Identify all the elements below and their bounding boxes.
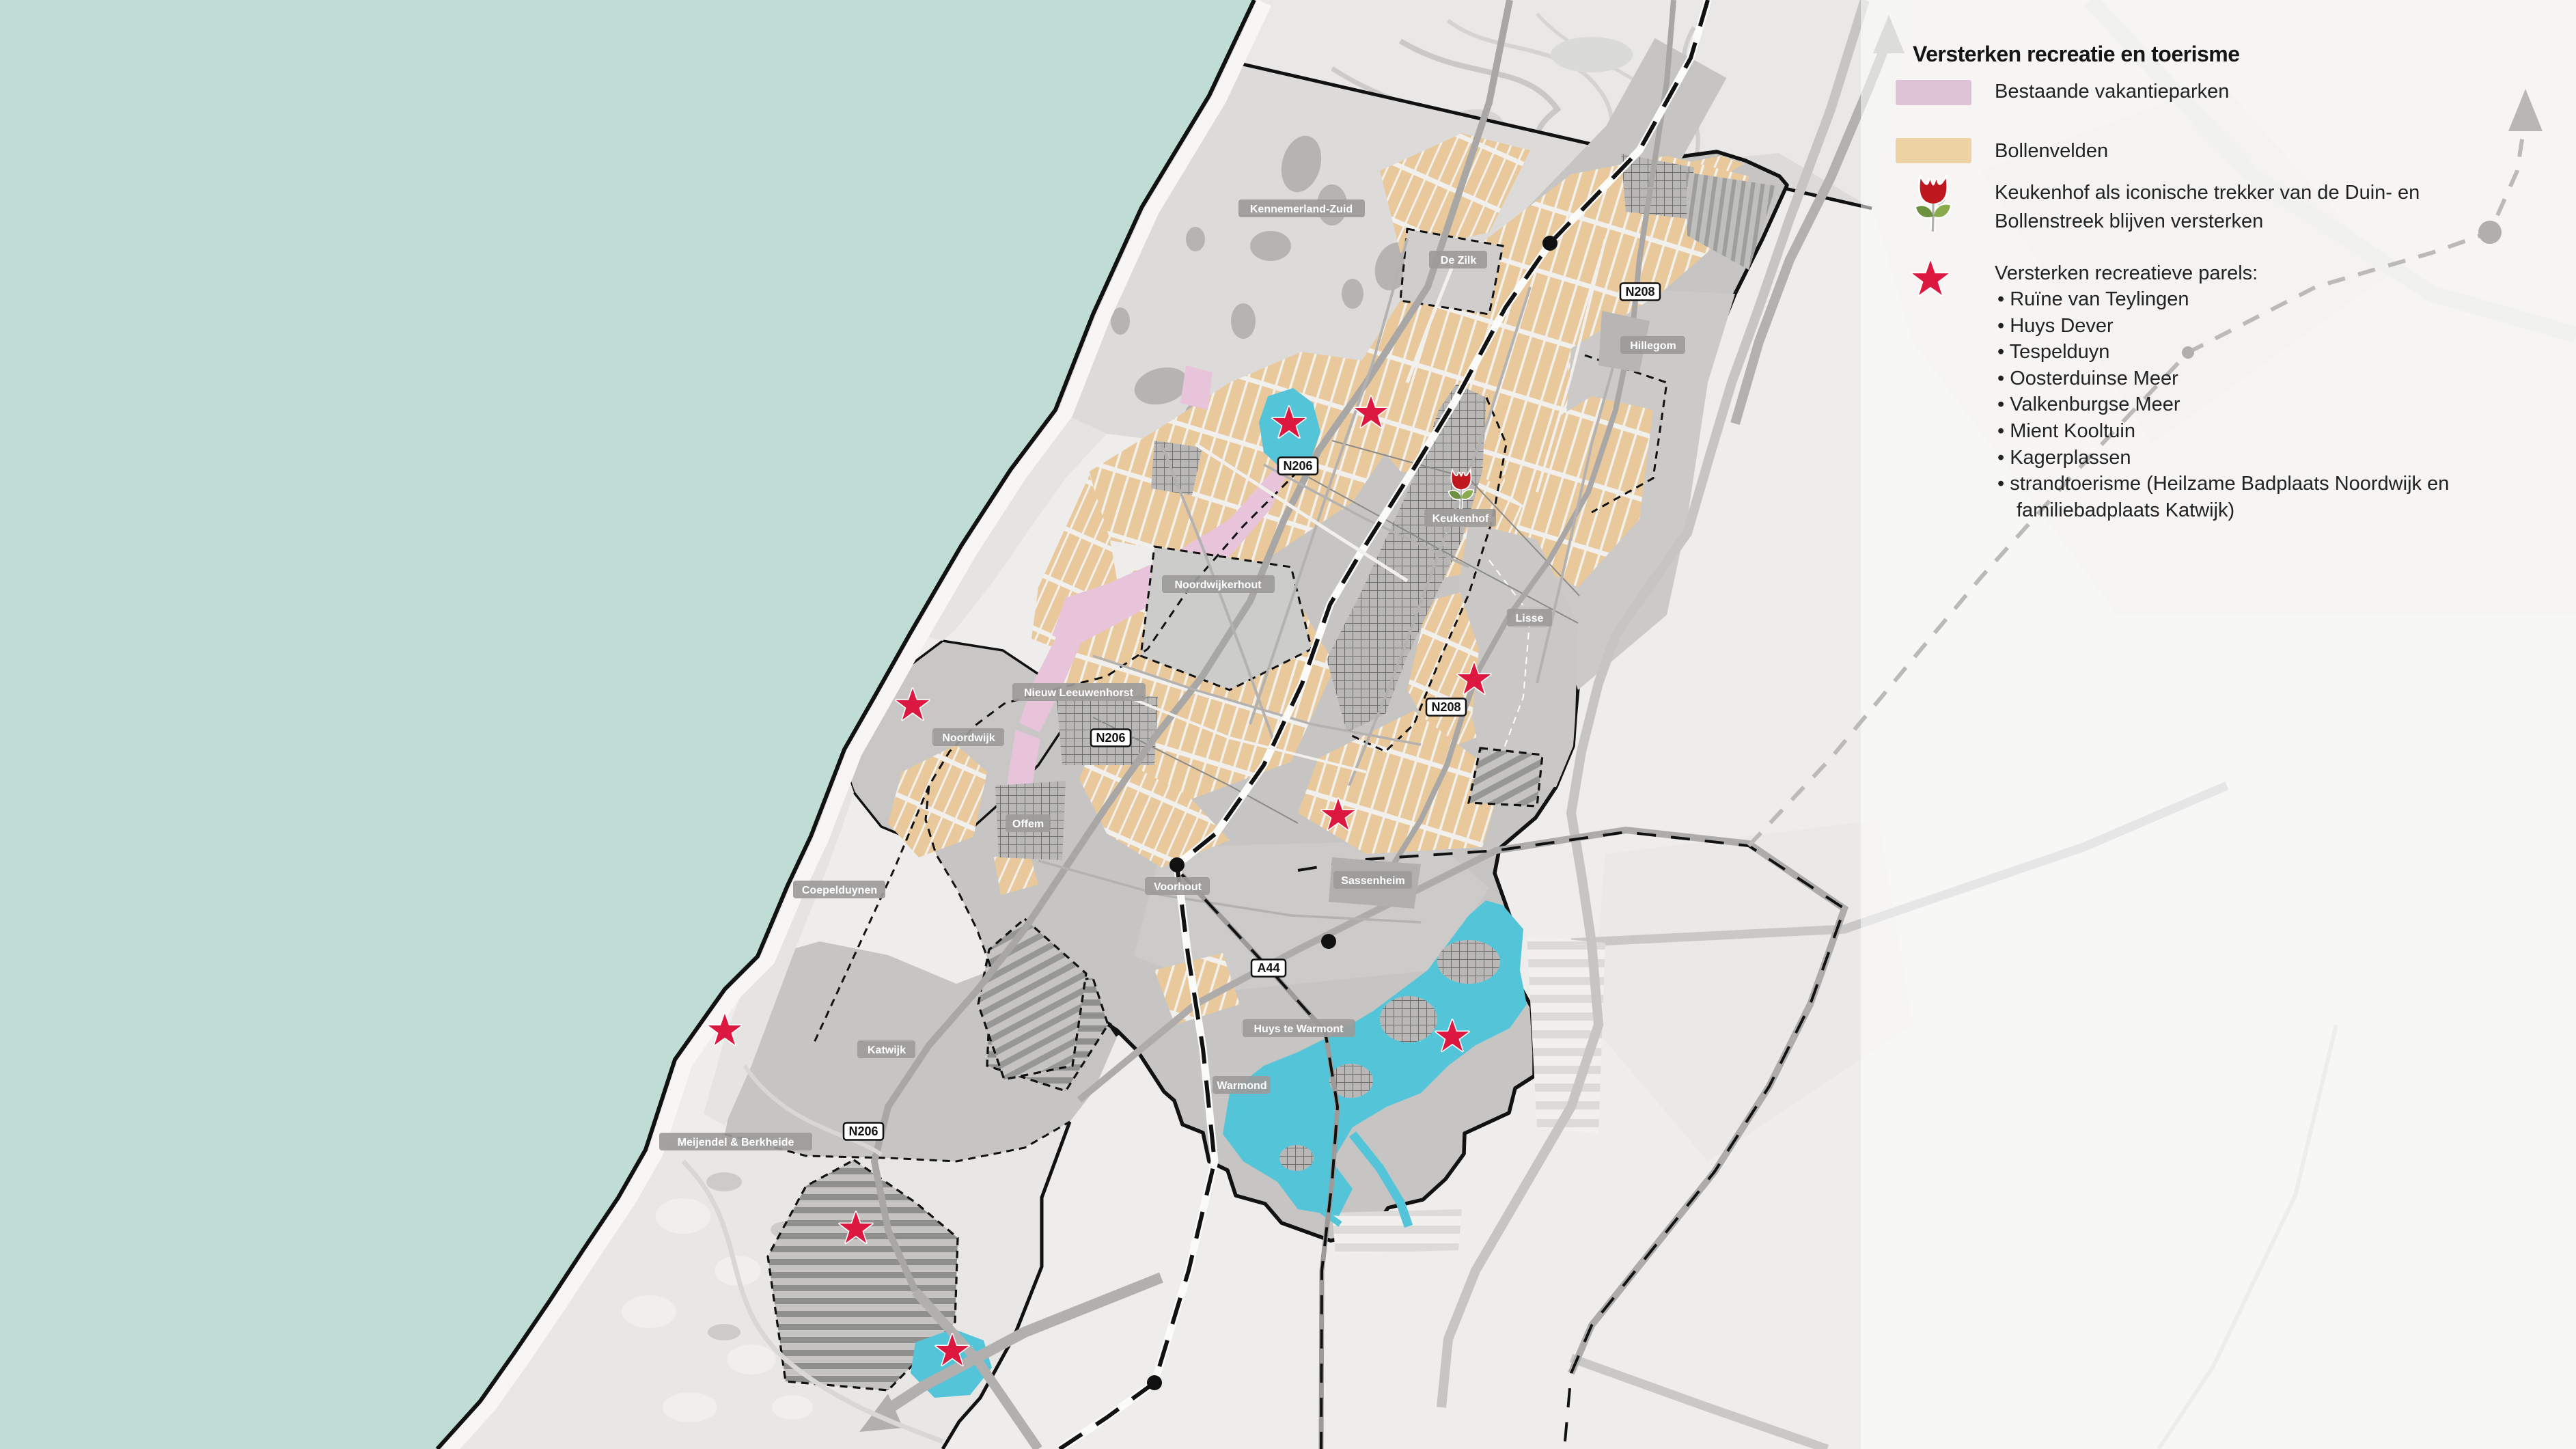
svg-text:Meijendel & Berkheide: Meijendel & Berkheide [678,1137,794,1148]
svg-text:• Mient Kooltuin: • Mient Kooltuin [1997,420,2135,442]
svg-text:N208: N208 [1431,700,1460,714]
svg-text:N206: N206 [1096,731,1125,745]
svg-text:N206: N206 [1283,459,1312,473]
svg-text:Hillegom: Hillegom [1630,340,1676,352]
svg-text:Versterken recreatieve parels:: Versterken recreatieve parels: [1995,262,2258,284]
svg-text:• Oosterduinse Meer: • Oosterduinse Meer [1997,368,2178,389]
svg-text:Nieuw Leeuwenhorst: Nieuw Leeuwenhorst [1024,687,1134,699]
svg-text:Lisse: Lisse [1516,613,1544,624]
svg-text:Bollenstreek blijven versterke: Bollenstreek blijven versterken [1995,210,2263,232]
svg-text:Keukenhof als iconische trekke: Keukenhof als iconische trekker van de D… [1995,182,2420,204]
svg-text:A44: A44 [1257,961,1279,975]
svg-text:Sassenheim: Sassenheim [1341,875,1404,887]
svg-text:Bestaande vakantieparken: Bestaande vakantieparken [1995,81,2229,102]
svg-text:• Ruïne van Teylingen: • Ruïne van Teylingen [1997,288,2189,310]
svg-text:N206: N206 [848,1124,878,1138]
svg-text:• strandtoerisme (Heilzame Bad: • strandtoerisme (Heilzame Badplaats Noo… [1997,473,2449,495]
svg-text:De Zilk: De Zilk [1441,255,1477,266]
svg-text:Huys te Warmont: Huys te Warmont [1254,1023,1344,1035]
svg-text:Voorhout: Voorhout [1154,881,1202,893]
svg-text:Versterken recreatie en toeris: Versterken recreatie en toerisme [1913,42,2240,66]
svg-text:Coepelduynen: Coepelduynen [802,885,877,896]
svg-text:• Kagerplassen: • Kagerplassen [1997,447,2131,469]
svg-text:• Tespelduyn: • Tespelduyn [1997,341,2109,363]
svg-text:Kennemerland-Zuid: Kennemerland-Zuid [1250,204,1353,215]
svg-text:Offem: Offem [1012,818,1044,830]
svg-text:Keukenhof: Keukenhof [1432,513,1489,525]
svg-text:N208: N208 [1625,285,1654,299]
svg-text:Warmond: Warmond [1217,1080,1266,1092]
svg-text:Noordwijk: Noordwijk [942,732,995,744]
svg-text:• Valkenburgse Meer: • Valkenburgse Meer [1997,394,2180,415]
svg-text:Bollenvelden: Bollenvelden [1995,140,2108,162]
svg-text:Noordwijkerhout: Noordwijkerhout [1174,579,1262,591]
svg-text:Katwijk: Katwijk [868,1045,906,1056]
svg-text:• Huys Dever: • Huys Dever [1997,315,2114,337]
svg-text:familiebadplaats Katwijk): familiebadplaats Katwijk) [2017,499,2234,521]
